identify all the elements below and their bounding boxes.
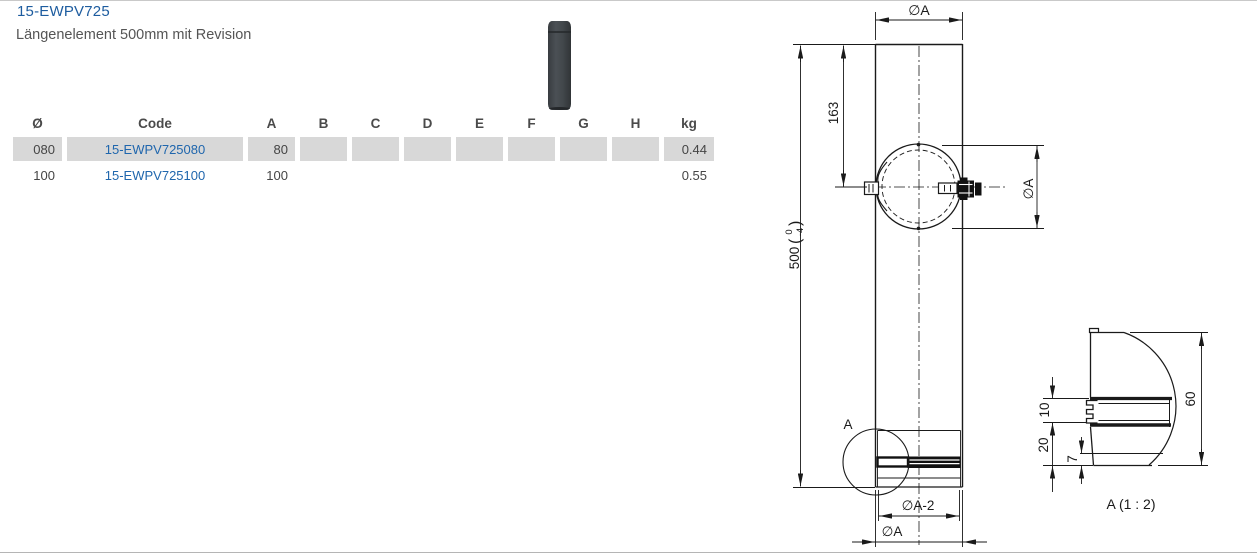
detail-view-dimensions <box>1043 333 1208 493</box>
dim-label-163: 163 <box>826 102 841 125</box>
main-view <box>843 44 1006 545</box>
detail-marker-label: A <box>843 417 852 432</box>
detail-view <box>1080 329 1176 466</box>
dim-label-10: 10 <box>1037 402 1052 417</box>
dim-label-500: 500 ( 0 -4 ) <box>784 221 806 270</box>
dim-label-7: 7 <box>1065 455 1080 463</box>
dim-label-dia-top: ∅A <box>908 2 930 18</box>
dim-500-tol-lower: -4 <box>795 228 806 236</box>
dim-label-20: 20 <box>1036 437 1051 452</box>
drawing-labels: ∅A 163 500 ( 0 -4 ) ∅A A ∅A-2 ∅A 60 10 2… <box>784 2 1198 539</box>
dim-500-tol-open: ( <box>787 238 804 244</box>
technical-drawing: ∅A 163 500 ( 0 -4 ) ∅A A ∅A-2 ∅A 60 10 2… <box>0 0 1257 553</box>
dim-500-value: 500 <box>787 247 802 270</box>
dim-label-60: 60 <box>1183 391 1198 406</box>
dim-label-dia-right: ∅A <box>1021 179 1036 200</box>
dim-500-tol-upper: 0 <box>784 229 795 234</box>
dim-label-dia-minus2: ∅A-2 <box>902 498 935 513</box>
dim-label-dia-bottom: ∅A <box>882 524 903 539</box>
detail-view-label: A (1 : 2) <box>1106 496 1155 512</box>
dim-500-tol-close: ) <box>787 221 804 226</box>
